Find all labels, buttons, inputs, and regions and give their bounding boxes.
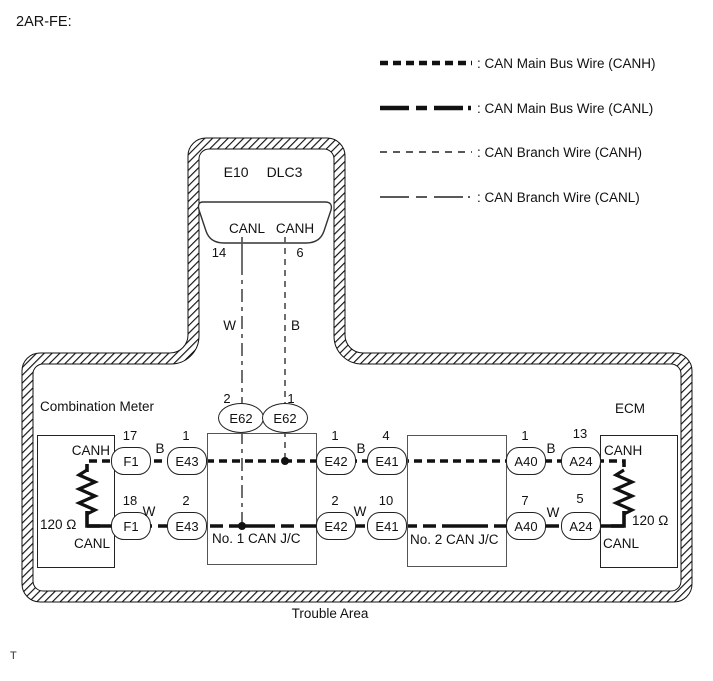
wire-color-canl-e42-e41: W [349, 504, 371, 519]
combination-meter-resistor-label: 120 Ω [40, 517, 76, 532]
wire-color-canl-f1-e43: W [138, 504, 160, 519]
connector-f1-top: F1 [111, 447, 151, 475]
connector-label: F1 [123, 454, 138, 469]
legend-item-branch-canl: : CAN Branch Wire (CANL) [380, 186, 640, 208]
combination-meter-canh-label: CANH [52, 443, 110, 458]
connector-e43-top: E43 [167, 447, 207, 475]
connector-a24-top: A24 [561, 447, 601, 475]
pin-e41-bottom: 10 [367, 493, 405, 508]
pin-e62-left: 2 [213, 391, 241, 406]
wire-color-branch-canh: B [291, 318, 321, 333]
connector-a40-top: A40 [506, 447, 546, 475]
legend-label: : CAN Main Bus Wire (CANH) [477, 56, 656, 71]
connector-label: E41 [375, 519, 398, 534]
pin-e43-top: 1 [167, 428, 205, 443]
connector-label: E42 [324, 519, 347, 534]
combination-meter-title: Combination Meter [40, 399, 154, 414]
connector-label: F1 [123, 519, 138, 534]
pin-a24-bottom: 5 [561, 491, 599, 506]
ecm-resistor-label: 120 Ω [632, 513, 668, 528]
dlc3-canl-label: CANL [224, 221, 270, 236]
legend-label: : CAN Branch Wire (CANH) [477, 145, 642, 160]
connector-e42-top: E42 [316, 447, 356, 475]
combination-meter-canl-label: CANL [52, 536, 110, 551]
dlc3-canh-label: CANH [271, 221, 319, 236]
wire-color-canh-e42-e41: B [351, 441, 371, 456]
connector-label: E43 [175, 519, 198, 534]
legend-item-main-canl: : CAN Main Bus Wire (CANL) [380, 97, 653, 119]
connector-label: E42 [324, 454, 347, 469]
connector-label: E43 [175, 454, 198, 469]
no2-can-jc-box [407, 435, 507, 567]
wire-color-branch-canl: W [206, 318, 236, 333]
pin-e41-top: 4 [367, 428, 405, 443]
pin-e43-bottom: 2 [167, 493, 205, 508]
wire-color-canh-a40-a24: B [541, 441, 561, 456]
connector-a24-bottom: A24 [561, 512, 601, 540]
connector-e41-bottom: E41 [367, 512, 407, 540]
no1-can-jc-label: No. 1 CAN J/C [212, 531, 301, 546]
no2-can-jc-label: No. 2 CAN J/C [410, 532, 499, 547]
connector-e62-left: E62 [218, 403, 264, 433]
pin-a40-bottom: 7 [506, 493, 544, 508]
engine-code-label: 2AR-FE: [16, 14, 72, 30]
pin-a40-top: 1 [506, 428, 544, 443]
connector-label: A40 [514, 519, 537, 534]
legend-line-branch-canh-icon [380, 148, 472, 156]
footnote-label: T [10, 650, 17, 662]
dlc3-connector-label: DLC3 [267, 164, 303, 180]
pin-dlc3-canh: 6 [286, 245, 314, 260]
connector-label: E41 [375, 454, 398, 469]
pin-dlc3-canl: 14 [203, 245, 235, 260]
connector-label: A24 [569, 454, 592, 469]
ecm-canl-label: CANL [603, 536, 639, 551]
pin-e42-top: 1 [316, 428, 354, 443]
legend-label: : CAN Main Bus Wire (CANL) [477, 101, 653, 116]
legend-line-main-canl-icon [380, 104, 472, 112]
connector-label: A40 [514, 454, 537, 469]
trouble-area-caption: Trouble Area [230, 606, 430, 621]
connector-e41-top: E41 [367, 447, 407, 475]
connector-e62-right: E62 [262, 403, 308, 433]
legend-item-branch-canh: : CAN Branch Wire (CANH) [380, 141, 642, 163]
connector-label: A24 [569, 519, 592, 534]
connector-label: E62 [229, 411, 252, 426]
connector-a40-bottom: A40 [506, 512, 546, 540]
pin-f1-top: 17 [111, 428, 149, 443]
pin-e62-right: 1 [277, 391, 305, 406]
connector-e43-bottom: E43 [167, 512, 207, 540]
wire-color-canl-a40-a24: W [542, 505, 564, 520]
legend-item-main-canh: : CAN Main Bus Wire (CANH) [380, 52, 656, 74]
wiring-diagram-page: 2AR-FE: T : CAN Main Bus Wire (CANH) : C… [0, 0, 713, 681]
wire-color-canh-f1-e43: B [150, 441, 170, 456]
legend-line-branch-canl-icon [380, 193, 472, 201]
dlc3-station-label: E10 [224, 164, 249, 180]
legend-line-main-canh-icon [380, 59, 472, 67]
connector-label: E62 [273, 411, 296, 426]
legend-label: : CAN Branch Wire (CANL) [477, 190, 640, 205]
ecm-title: ECM [594, 401, 666, 416]
dlc3-header: E10 DLC3 [193, 164, 333, 180]
pin-a24-top: 13 [561, 426, 599, 441]
ecm-canh-label: CANH [604, 443, 642, 458]
